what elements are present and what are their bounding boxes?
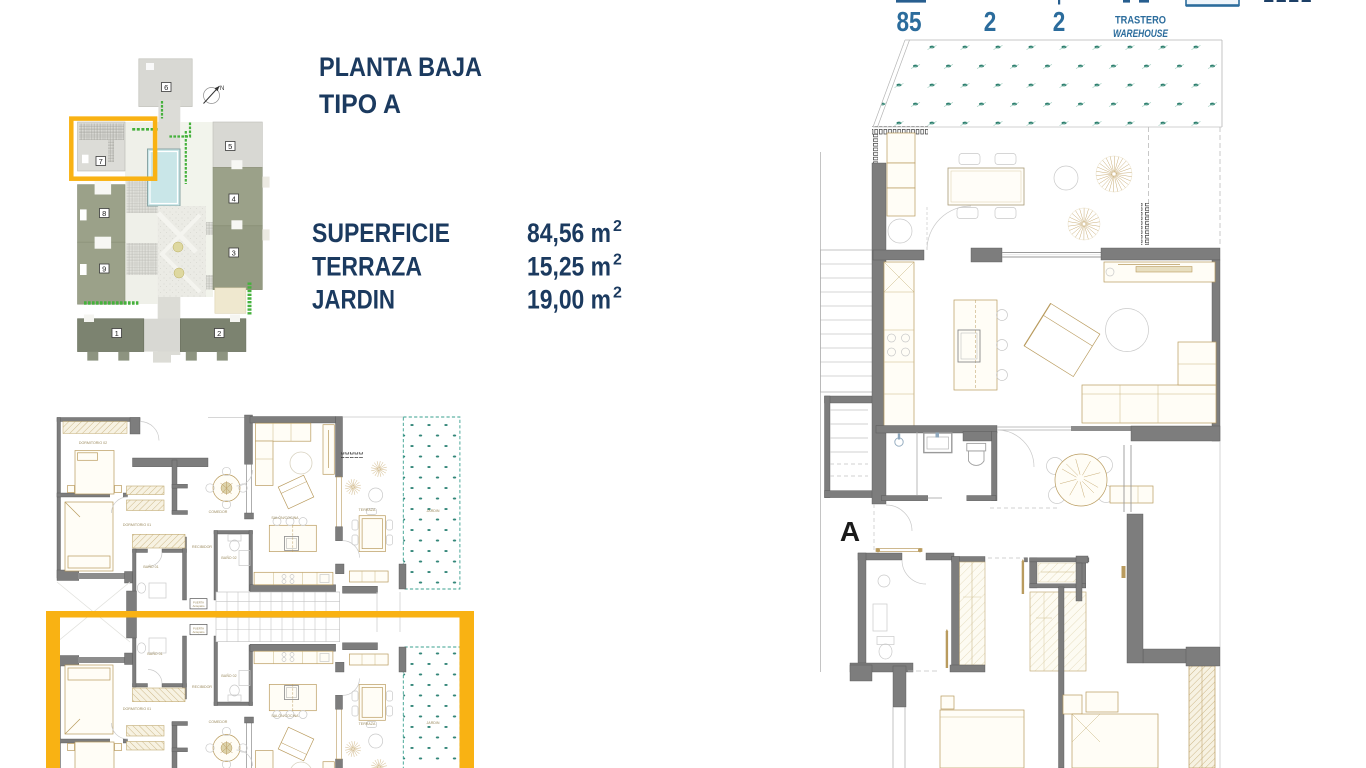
svg-text:DORMITORIO 01: DORMITORIO 01 xyxy=(123,523,151,527)
svg-text:8: 8 xyxy=(102,209,106,218)
svg-text:TIPO A: TIPO A xyxy=(319,89,401,119)
svg-text:JARDIN: JARDIN xyxy=(312,285,395,315)
svg-text:9: 9 xyxy=(102,265,106,274)
svg-text:2: 2 xyxy=(613,218,622,235)
svg-text:JARDIN: JARDIN xyxy=(427,509,440,513)
svg-text:COMEDOR: COMEDOR xyxy=(209,720,228,724)
svg-text:2: 2 xyxy=(613,285,622,302)
svg-text:SUPERFICIE: SUPERFICIE xyxy=(312,218,450,248)
svg-text:SALÓN/COCINA: SALÓN/COCINA xyxy=(271,515,299,520)
svg-text:TERRAZA: TERRAZA xyxy=(359,508,376,512)
svg-text:BAÑO 02: BAÑO 02 xyxy=(221,673,236,678)
svg-text:TERRAZA: TERRAZA xyxy=(312,252,422,282)
svg-text:BAÑO 02: BAÑO 02 xyxy=(221,555,236,560)
svg-text:2: 2 xyxy=(217,329,221,338)
svg-text:19,00 m: 19,00 m xyxy=(527,285,611,315)
svg-text:15,25 m: 15,25 m xyxy=(527,252,611,282)
svg-text:SALÓN/COCINA: SALÓN/COCINA xyxy=(271,713,299,718)
svg-text:84,56 m: 84,56 m xyxy=(527,218,611,248)
svg-text:Antepatio: Antepatio xyxy=(193,604,205,608)
svg-text:BAÑO 01: BAÑO 01 xyxy=(147,651,162,656)
svg-text:RECIBIDOR: RECIBIDOR xyxy=(192,685,212,689)
svg-text:COMEDOR: COMEDOR xyxy=(209,510,228,514)
svg-text:DORMITORIO 01: DORMITORIO 01 xyxy=(123,707,151,711)
svg-text:PLANTA BAJA: PLANTA BAJA xyxy=(319,52,482,82)
svg-text:A: A xyxy=(840,516,860,547)
svg-text:TRASTERO: TRASTERO xyxy=(1115,15,1166,27)
svg-text:2: 2 xyxy=(613,252,622,269)
svg-text:6: 6 xyxy=(164,83,168,92)
svg-text:JARDIN: JARDIN xyxy=(427,721,440,725)
svg-text:85: 85 xyxy=(896,7,921,38)
svg-text:3: 3 xyxy=(232,249,236,258)
svg-text:TERRAZA: TERRAZA xyxy=(359,722,376,726)
svg-text:RECIBIDOR: RECIBIDOR xyxy=(192,545,212,549)
svg-text:2: 2 xyxy=(984,7,997,38)
svg-text:BAÑO 01: BAÑO 01 xyxy=(143,564,158,569)
svg-text:7: 7 xyxy=(99,157,103,166)
svg-text:1: 1 xyxy=(115,329,119,338)
svg-text:2: 2 xyxy=(1053,7,1066,38)
svg-text:N: N xyxy=(220,86,224,92)
svg-text:DORMITORIO 02: DORMITORIO 02 xyxy=(79,441,107,445)
svg-text:5: 5 xyxy=(228,142,232,151)
svg-text:4: 4 xyxy=(232,195,236,204)
svg-text:WAREHOUSE: WAREHOUSE xyxy=(1113,28,1169,40)
svg-text:Antepatio: Antepatio xyxy=(193,630,205,634)
